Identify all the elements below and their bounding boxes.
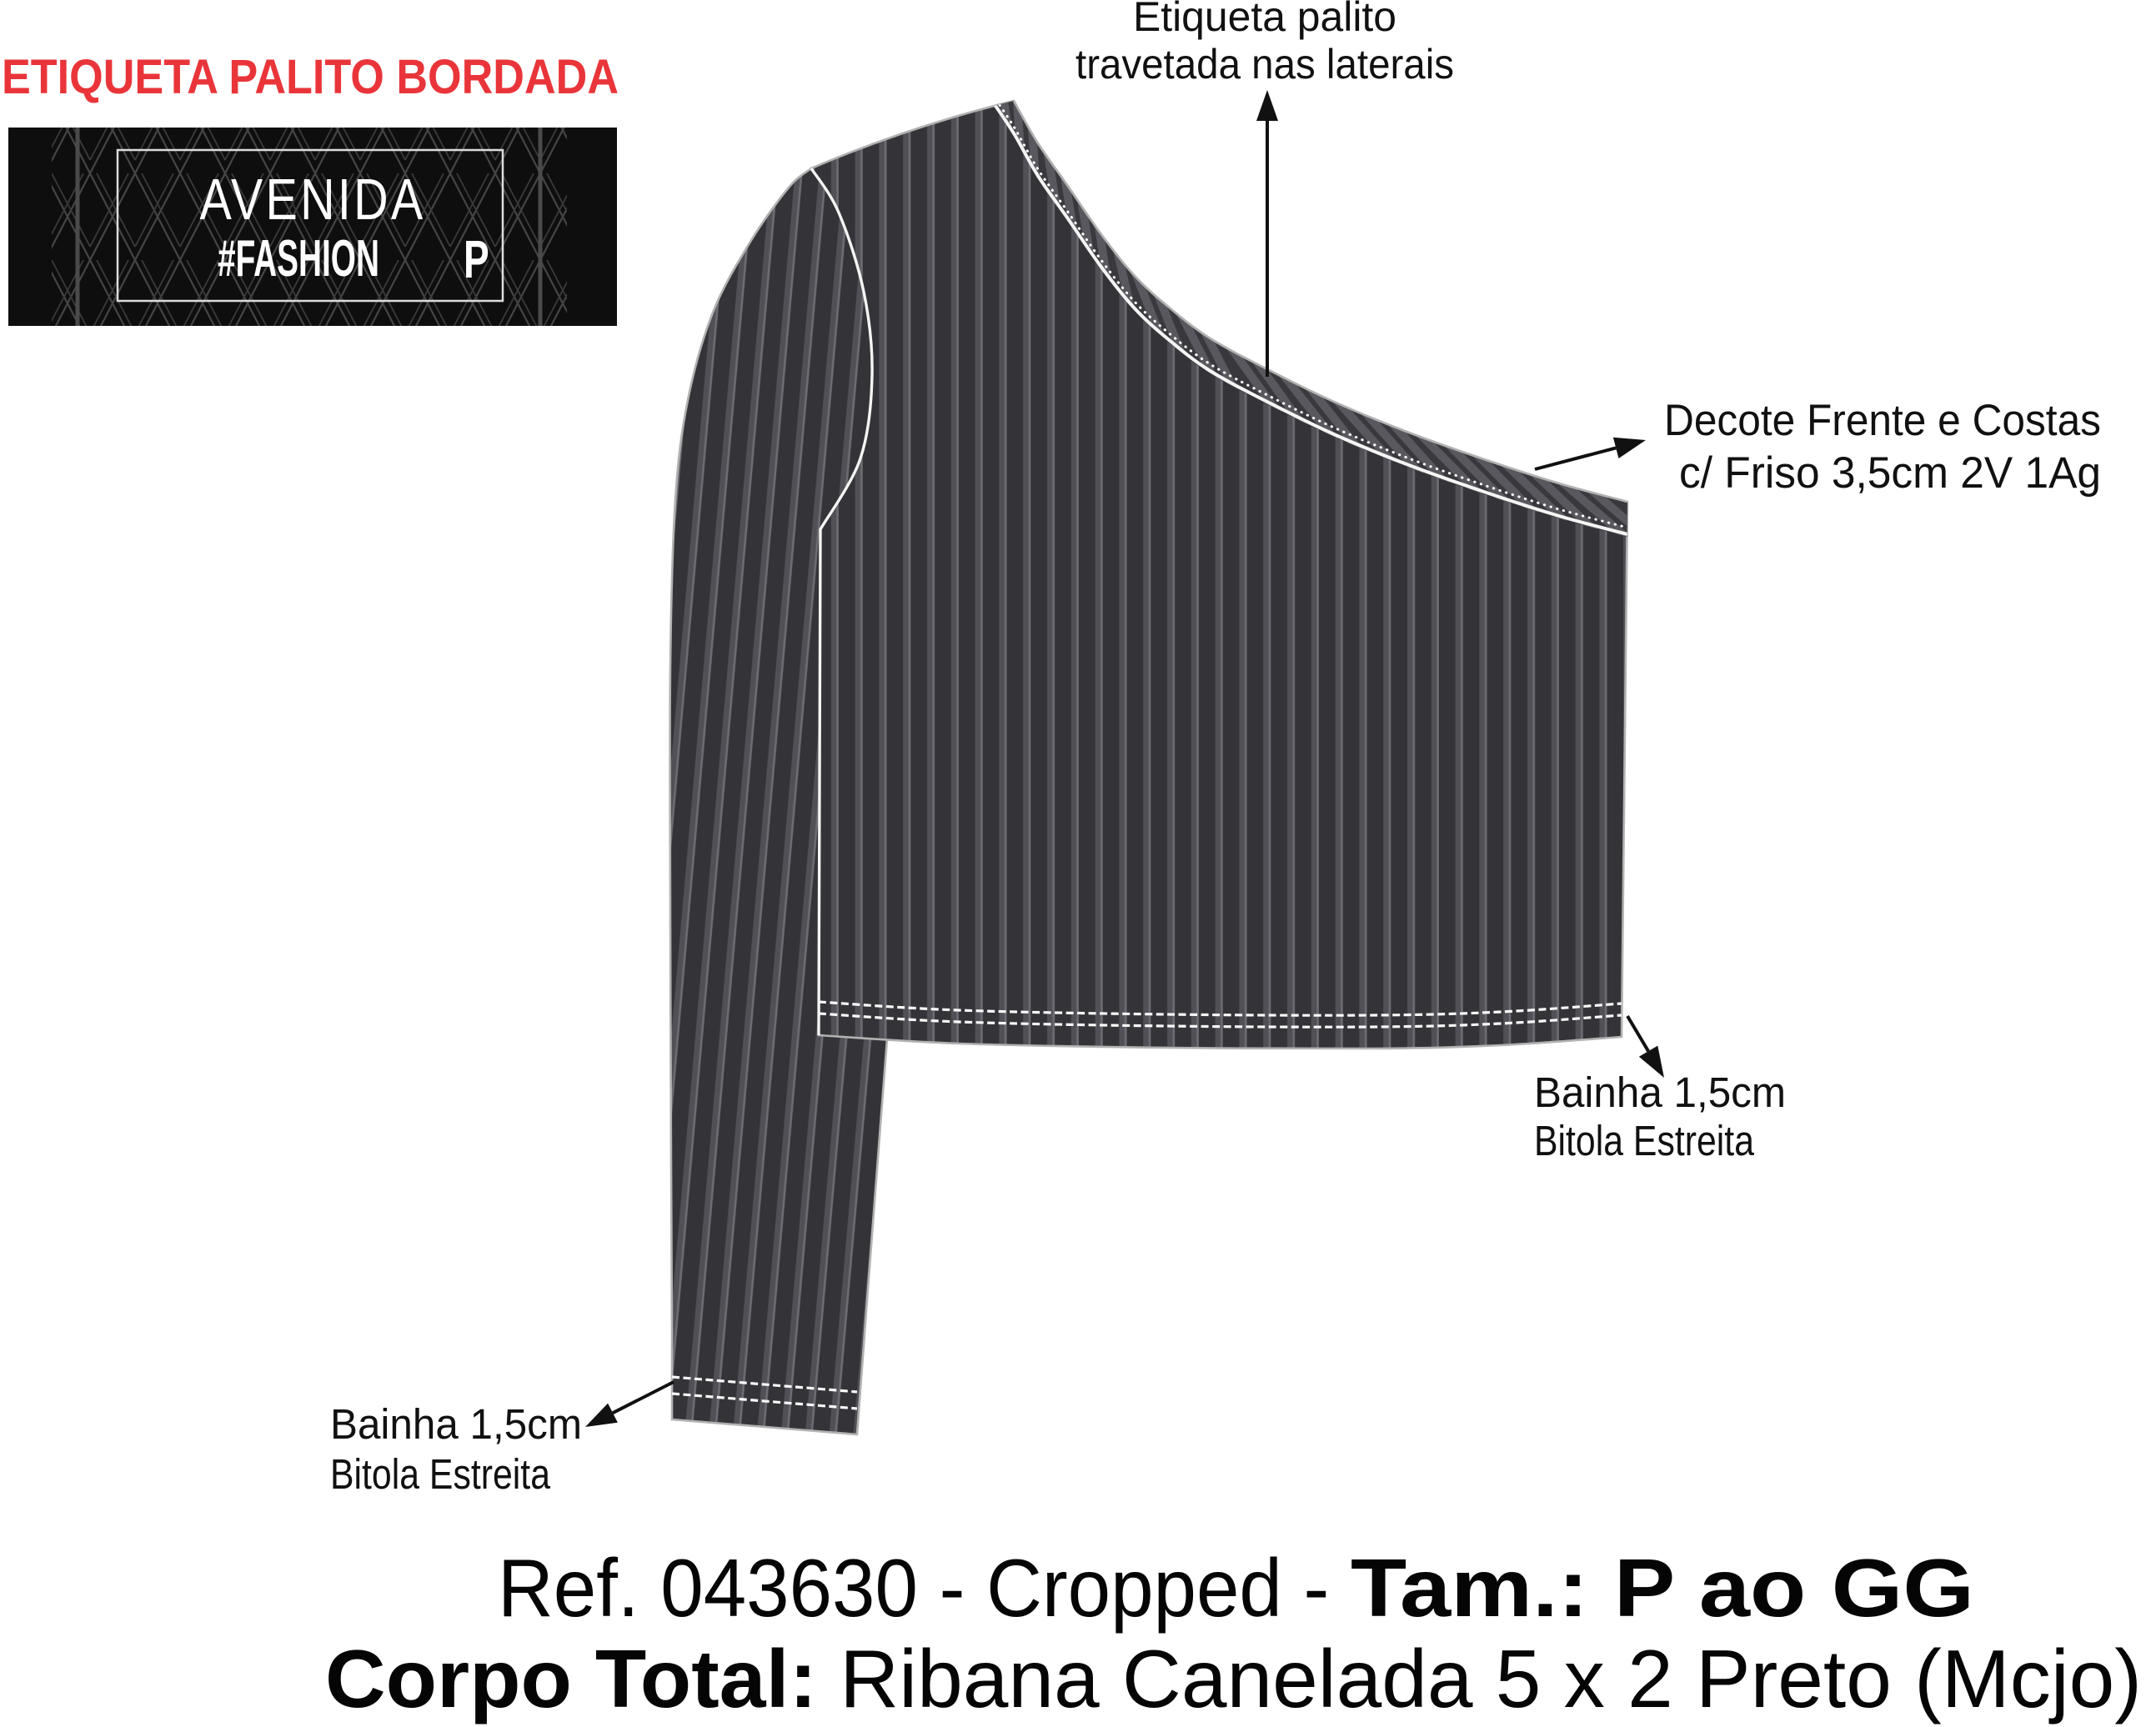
svg-text:ETIQUETA PALITO BORDADA: ETIQUETA PALITO BORDADA (2, 50, 619, 104)
svg-text:Decote Frente e Costas: Decote Frente e Costas (1664, 396, 2101, 445)
svg-text:Bitola Estreita: Bitola Estreita (330, 1450, 551, 1498)
svg-text:Corpo Total: Ribana Canelada 5: Corpo Total: Ribana Canelada 5 x 2 Preto… (325, 1633, 2142, 1724)
svg-text:Bainha 1,5cm: Bainha 1,5cm (1534, 1069, 1786, 1116)
svg-text:Etiqueta palito: Etiqueta palito (1133, 0, 1396, 40)
svg-text:c/ Friso 3,5cm 2V 1Ag: c/ Friso 3,5cm 2V 1Ag (1679, 448, 2101, 498)
svg-text:Bitola Estreita: Bitola Estreita (1534, 1117, 1755, 1164)
svg-text:#FASHION: #FASHION (218, 230, 379, 288)
svg-text:travetada nas laterais: travetada nas laterais (1075, 41, 1454, 88)
svg-text:Bainha 1,5cm: Bainha 1,5cm (330, 1400, 582, 1448)
svg-text:AVENIDA: AVENIDA (200, 167, 426, 232)
svg-text:Ref. 043630 - Cropped - Tam.:: Ref. 043630 - Cropped - Tam.: P ao GG (498, 1542, 1974, 1634)
svg-text:P: P (464, 230, 489, 289)
